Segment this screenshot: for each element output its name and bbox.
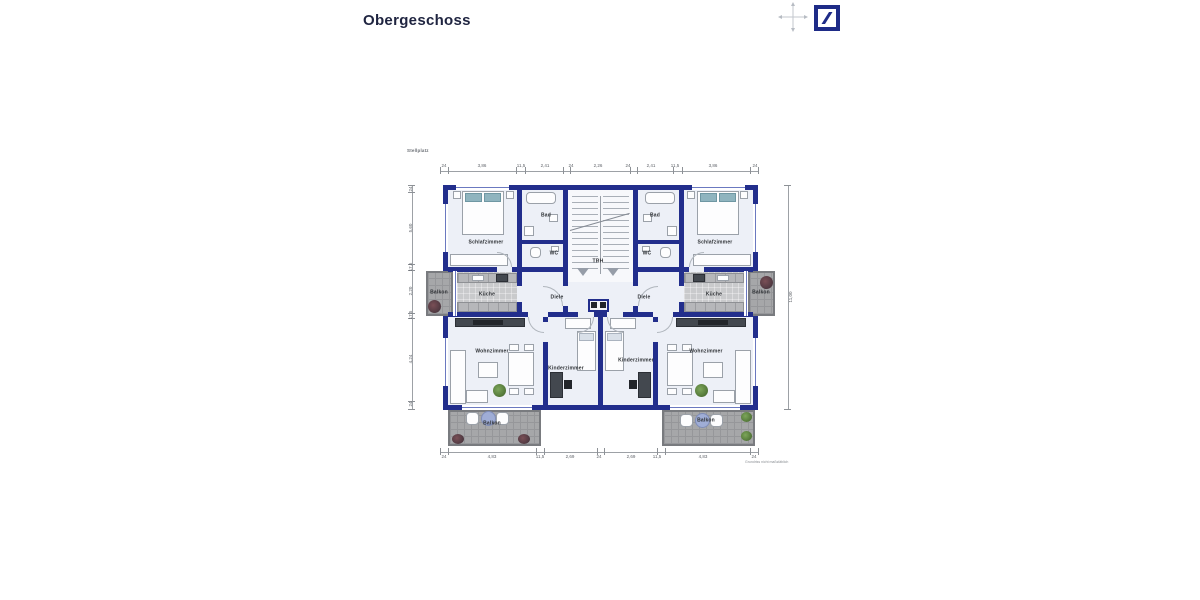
dim-tick	[784, 185, 791, 186]
dimension-label: 24	[441, 455, 446, 460]
room-label-wc-right: WC	[643, 252, 652, 257]
toilet	[530, 247, 541, 258]
dim-tick	[604, 448, 605, 455]
dim-tick	[544, 448, 545, 455]
plant	[518, 434, 530, 444]
wall-segment	[517, 190, 522, 267]
sofa	[450, 350, 466, 404]
stair-flight	[603, 196, 629, 274]
window	[753, 204, 758, 252]
tv	[473, 320, 503, 325]
dimension-label: 24	[752, 164, 757, 169]
disclaimer: Grundriss nicht maßstäblich	[745, 461, 788, 465]
room-label-kueche-right: Küche	[706, 293, 722, 298]
wall-segment	[638, 240, 679, 244]
room-label-kinderzimmer-left: Kinderzimmer	[548, 367, 584, 372]
desk-chair	[564, 380, 572, 389]
dimension-label: 4,24	[409, 355, 414, 364]
dim-tick	[750, 167, 751, 174]
pillow	[579, 333, 594, 341]
plant	[741, 431, 752, 441]
room-label-diele-left: Diele	[551, 296, 564, 301]
dim-line	[440, 452, 758, 453]
nightstand	[687, 191, 695, 199]
room-label-kueche-left: Küche	[479, 293, 495, 298]
page-canvas: Obergeschoss Stellplatz Grundriss nicht …	[0, 0, 1200, 600]
dim-tick	[758, 448, 759, 455]
dim-line	[412, 185, 413, 410]
wall-segment	[653, 342, 658, 405]
dim-tick	[784, 409, 791, 410]
balcony-chair	[680, 414, 693, 427]
dimension-label: 2,26	[594, 164, 603, 169]
room-label-balkon-bottom-right: Balkon	[697, 419, 715, 424]
chair	[667, 388, 677, 395]
room-label-trh: TRH	[593, 260, 604, 265]
desk	[550, 372, 563, 398]
kitchen-counter	[457, 273, 517, 283]
wall-segment	[563, 306, 568, 312]
room-label-balkon-side-left: Balkon	[430, 291, 448, 296]
wall-segment	[623, 312, 653, 317]
balcony-door	[744, 271, 748, 316]
dimension-label: 11,5	[536, 455, 544, 460]
dimension-label: 4,83	[488, 455, 497, 460]
sofa	[713, 390, 735, 403]
dim-tick	[758, 167, 759, 174]
coffee-table	[703, 362, 723, 378]
dim-tick	[637, 167, 638, 174]
dimension-label: 2,41	[541, 164, 550, 169]
desk	[638, 372, 651, 398]
wall-segment	[548, 312, 578, 317]
dimension-label: 24	[409, 401, 414, 406]
room-label-schlafzimmer-left: Schlafzimmer	[469, 241, 504, 246]
dimension-label: 11,5	[671, 164, 679, 169]
room-label-wohnzimmer-right: Wohnzimmer	[689, 350, 722, 355]
window	[670, 405, 740, 410]
entry-arrow	[607, 268, 619, 276]
stove	[693, 274, 705, 282]
tv	[698, 320, 728, 325]
pillow	[719, 193, 736, 202]
window	[456, 185, 509, 190]
room-label-bad-right: Bad	[650, 214, 660, 219]
window	[692, 185, 745, 190]
plant	[452, 434, 464, 444]
kitchen-sink	[472, 275, 484, 281]
pillow	[607, 333, 622, 341]
chair	[509, 388, 519, 395]
dimension-label: 2,69	[627, 455, 636, 460]
wall-segment	[448, 312, 528, 317]
kitchen-counter	[457, 302, 517, 312]
room-label-balkon-bottom-left: Balkon	[483, 422, 501, 427]
wall-segment	[563, 190, 568, 286]
dim-tick	[408, 192, 415, 193]
sofa	[466, 390, 488, 403]
kitchen-sink	[717, 275, 729, 281]
plant	[760, 276, 773, 289]
wall-segment	[517, 302, 522, 312]
plant	[741, 412, 752, 422]
floor-plan: Stellplatz Grundriss nicht maßstäblich S…	[0, 0, 1200, 600]
nightstand	[740, 191, 748, 199]
wall-segment	[522, 240, 563, 244]
window	[443, 204, 448, 252]
dim-tick	[682, 167, 683, 174]
bathtub	[526, 192, 556, 204]
shaft-box	[591, 302, 597, 308]
wall-segment	[543, 342, 548, 405]
dimension-label: 24	[568, 164, 573, 169]
shaft-box	[600, 302, 606, 308]
plant	[428, 300, 441, 313]
dimension-label: 17,5	[409, 263, 414, 272]
wall-segment	[673, 312, 753, 317]
chair	[524, 344, 534, 351]
dim-tick	[563, 167, 564, 174]
bathtub	[645, 192, 675, 204]
room-label-schlafzimmer-right: Schlafzimmer	[698, 241, 733, 246]
dimension-label: 24	[625, 164, 630, 169]
pillow	[484, 193, 501, 202]
dimension-label: 11,00	[789, 292, 794, 303]
dimension-label: 3,86	[478, 164, 487, 169]
toilet	[660, 247, 671, 258]
dimension-label: 17,5	[409, 311, 414, 320]
dimension-label: 11,5	[653, 455, 661, 460]
nightstand	[506, 191, 514, 199]
window	[443, 338, 448, 386]
kitchen-counter	[684, 302, 744, 312]
pillow	[465, 193, 482, 202]
dimension-label: 3,86	[709, 164, 718, 169]
dining-table	[667, 352, 693, 386]
chair	[524, 388, 534, 395]
room-label-kinderzimmer-right: Kinderzimmer	[618, 359, 654, 364]
chair	[682, 388, 692, 395]
plant	[695, 384, 708, 397]
dimension-label: 2,69	[566, 455, 575, 460]
wall-segment	[679, 190, 684, 267]
coffee-table	[478, 362, 498, 378]
plant	[493, 384, 506, 397]
window	[753, 338, 758, 386]
balcony-chair	[466, 412, 479, 425]
dimension-label: 2,41	[647, 164, 656, 169]
room-label-wc-left: WC	[550, 252, 559, 257]
dim-line	[440, 171, 758, 172]
dim-tick	[665, 448, 666, 455]
window	[462, 405, 532, 410]
dimension-label: 24	[751, 455, 756, 460]
stove	[496, 274, 508, 282]
washer	[524, 226, 534, 236]
dim-tick	[448, 448, 449, 455]
pillow	[700, 193, 717, 202]
dimension-label: 2,20	[409, 287, 414, 296]
room-label-diele-right: Diele	[638, 296, 651, 301]
wall-segment	[517, 272, 522, 286]
desk-chair	[629, 380, 637, 389]
room-label-balkon-side-right: Balkon	[752, 291, 770, 296]
entry-arrow	[577, 268, 589, 276]
dim-tick	[408, 409, 415, 410]
chair	[509, 344, 519, 351]
stellplatz-label: Stellplatz	[407, 149, 429, 154]
wall-segment	[598, 317, 603, 405]
room-label-bad-left: Bad	[541, 214, 551, 219]
washer	[667, 226, 677, 236]
dimension-label: 24	[596, 455, 601, 460]
dining-table	[508, 352, 534, 386]
chair	[667, 344, 677, 351]
dimension-label: 24	[441, 164, 446, 169]
nightstand	[453, 191, 461, 199]
room-label-wohnzimmer-left: Wohnzimmer	[475, 350, 508, 355]
dimension-label: 4,83	[699, 455, 708, 460]
sofa	[735, 350, 751, 404]
dimension-label: 5,60	[409, 224, 414, 233]
dim-tick	[448, 167, 449, 174]
dimension-label: 11,5	[517, 164, 525, 169]
dimension-label: 24	[409, 186, 414, 191]
